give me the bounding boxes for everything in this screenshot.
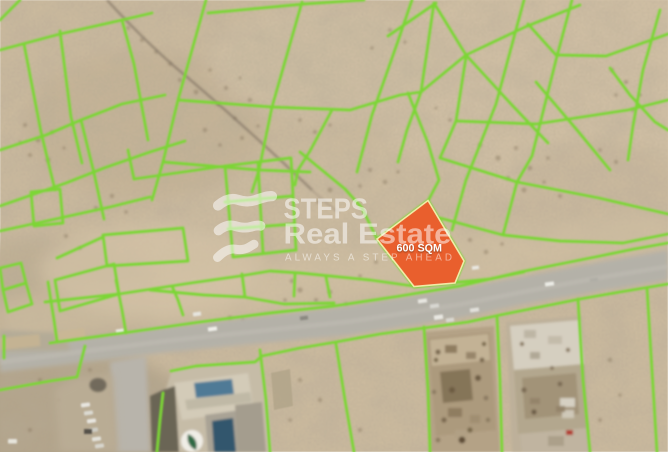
svg-text:600 SQM: 600 SQM <box>397 243 443 255</box>
